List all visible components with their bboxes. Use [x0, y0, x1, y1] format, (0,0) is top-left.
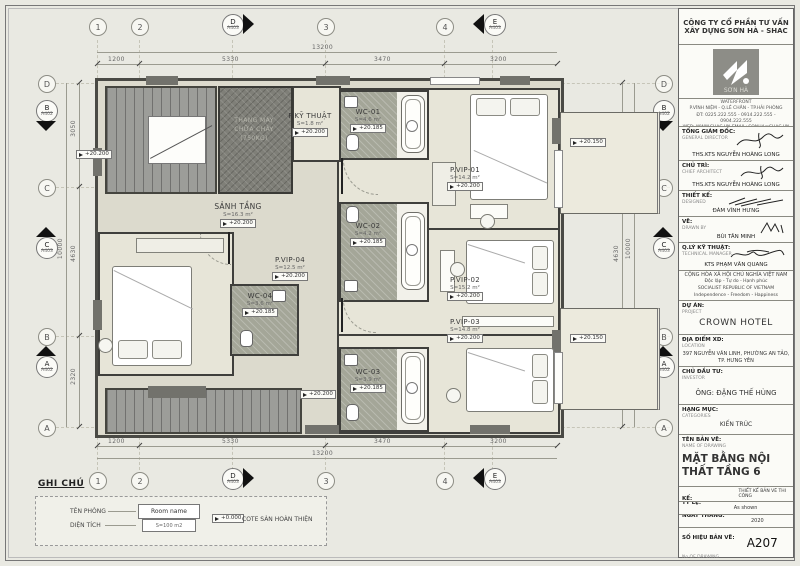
pillow: [532, 354, 548, 378]
grid-bubble-A-right: A: [655, 419, 673, 437]
room-label-vip-02: P.VIP-02 S=15.2 m² +20.200: [430, 276, 500, 301]
tub-drain: [406, 244, 418, 256]
dim-seg: 1200: [108, 438, 125, 445]
dim-overall-right: 10000: [625, 238, 632, 259]
chair: [480, 214, 495, 229]
pillow: [476, 98, 506, 116]
sonha-logo-icon: SƠN HÀ: [713, 49, 759, 95]
section-arrow-icon: [36, 121, 56, 131]
signature: [727, 247, 787, 262]
legend-room-name-label: TÊN PHÒNG: [70, 508, 106, 515]
section-marker-e: EA403: [484, 14, 506, 36]
location-value: 397 NGUYỄN VĂN LINH, PHƯỜNG AN TẢO, TP. …: [682, 351, 790, 365]
sink: [344, 280, 358, 292]
company-name: CÔNG TY CỔ PHẦN TƯ VẤN: [682, 19, 790, 27]
window: [430, 77, 480, 85]
level-tag: +20.200: [76, 150, 112, 159]
dim-seg: 5330: [222, 438, 239, 445]
room-label-sanh-tang: SẢNH TẦNG S=16.3 m² +20.200: [205, 202, 271, 228]
pillow: [152, 340, 182, 359]
room-label-wc-01: WC-01 S=4.6 m² +20.185: [340, 108, 396, 133]
level-tag: +20.200: [300, 390, 336, 399]
wardrobe: [136, 238, 224, 253]
project-row: DỰ ÁN: PROJECT CROWN HOTEL: [679, 301, 793, 335]
project-name: CROWN HOTEL: [682, 318, 790, 328]
toilet: [346, 134, 359, 151]
scale-row: TỶ LỆ:SCALE As shown: [679, 502, 793, 515]
grid-bubble-C: C: [38, 179, 56, 197]
signature: [737, 165, 787, 180]
grid-bubble-4b: 4: [436, 472, 454, 490]
chair: [450, 262, 465, 277]
room-label-wc-02: WC-02 S=4.2 m² +20.185: [340, 222, 396, 247]
category-row: HẠNG MỤC: CATEGORIES KIẾN TRÚC: [679, 405, 793, 435]
level-tag: +20.150: [570, 334, 606, 343]
dim-overall-bottom: 13200: [312, 450, 333, 457]
toilet: [346, 404, 359, 421]
dim-seg: 3050: [70, 120, 77, 137]
section-marker-b-left: BA402: [36, 100, 58, 122]
drawing-name-row: TÊN BẢN VẼ: NAME OF DRAWING MẶT BẰNG NỘI…: [679, 435, 793, 487]
grid-bubble-D: D: [38, 75, 56, 93]
grid-bubble-2: 2: [131, 18, 149, 36]
dim-seg: 3200: [490, 56, 507, 63]
investor-row: CHỦ ĐẦU TƯ: INVESTOR ÔNG: ĐẶNG THẾ HÙNG: [679, 367, 793, 405]
company-header: CÔNG TY CỔ PHẦN TƯ VẤN XÂY DỰNG SƠN HÀ -…: [679, 9, 793, 45]
section-arrow-icon: [36, 227, 56, 237]
drawing-name: MẶT BẰNG NỘI THẤT TẦNG 6: [682, 453, 790, 479]
tub-drain: [406, 382, 418, 394]
door-leaf: [341, 158, 343, 194]
pillow: [118, 340, 148, 359]
dim-seg: 2320: [70, 368, 77, 385]
dim-seg: 3200: [490, 438, 507, 445]
balcony-lower: [560, 308, 660, 410]
door-leaf: [341, 298, 343, 332]
dim-seg: 4630: [613, 245, 620, 262]
wall-pier: [305, 425, 339, 434]
stage-value: THIẾT KẾ BẢN VẼ THI CÔNG: [739, 489, 791, 499]
section-marker-e-bottom: EA403: [484, 468, 506, 490]
wall-pier: [93, 300, 102, 330]
door-leaf: [228, 232, 230, 264]
date-row: NGÀY THÁNG:DATE 2020: [679, 515, 793, 528]
toilet: [240, 330, 253, 347]
grid-bubble-4: 4: [436, 18, 454, 36]
legend-cote-label: COTE SÀN HOÀN THIỆN: [242, 516, 313, 523]
section-arrow-icon: [243, 468, 254, 488]
legend-title: GHI CHÚ: [38, 479, 84, 489]
nightstand: [98, 338, 113, 353]
section-marker-d: DA403: [222, 14, 244, 36]
room-label-wc-03: WC-03 S=3.9 m² +20.185: [340, 368, 396, 393]
stage-row: GIAI ĐOẠN THIẾT KẾ:DESIGNING THIẾT KẾ BẢ…: [679, 487, 793, 502]
wall-pier: [148, 386, 206, 398]
sink: [344, 96, 358, 108]
role-technical-manager: Q.LÝ KỸ THUẬT: TECHNICAL MANAGER KTS PHẠ…: [679, 243, 793, 271]
room-label-vip-03: P.VIP-03 S=14.8 m² +20.200: [430, 318, 500, 343]
section-arrow-icon: [653, 227, 673, 237]
signature: [757, 221, 787, 235]
scale-value: As shown: [734, 505, 758, 511]
wall-pier: [316, 76, 350, 85]
role-designed: THIẾT KẾ: DESIGNED ĐÀM VĨNH HƯNG: [679, 191, 793, 217]
wall-pier: [552, 118, 561, 144]
dim-seg: 3470: [374, 56, 391, 63]
grid-bubble-1: 1: [89, 18, 107, 36]
date-value: 2020: [751, 518, 764, 524]
pillow: [532, 272, 548, 296]
section-marker-a-left: AA402: [36, 356, 58, 378]
grid-bubble-D-right: D: [655, 75, 673, 93]
signature: [727, 195, 787, 207]
category-value: KIẾN TRÚC: [682, 421, 790, 428]
section-arrow-icon: [473, 14, 484, 34]
section-arrow-icon: [473, 468, 484, 488]
wall-pier: [470, 425, 510, 434]
room-label-vip-04: P.VIP-04 S=12.5 m² +20.200: [255, 256, 325, 281]
section-marker-c-right: CA403: [653, 237, 675, 259]
legend-area-label: DIỆN TÍCH: [70, 522, 101, 529]
tub-drain: [406, 120, 418, 132]
title-block: CÔNG TY CỔ PHẦN TƯ VẤN XÂY DỰNG SƠN HÀ -…: [678, 8, 794, 558]
balcony-upper: [560, 112, 660, 214]
dim-seg: 3470: [374, 438, 391, 445]
role-general-director: TỔNG GIÁM ĐỐC: GENERAL DIRECTOR THS.KTS …: [679, 127, 793, 161]
toilet: [346, 206, 359, 223]
legend-cote-marker: +0.000: [212, 514, 244, 523]
window: [554, 150, 563, 208]
dim-overall-left: 10000: [57, 238, 64, 259]
stair-landing: [148, 116, 206, 164]
dim-seg: 1200: [108, 56, 125, 63]
section-arrow-icon: [36, 346, 56, 356]
room-label-ky-thuat: P.KỸ THUẬT S=1.8 m² +20.200: [280, 112, 340, 137]
investor-value: ÔNG: ĐẶNG THẾ HÙNG: [682, 389, 790, 397]
company-logo: SƠN HÀ: [679, 45, 793, 99]
dim-seg: 5330: [222, 56, 239, 63]
grid-bubble-2b: 2: [131, 472, 149, 490]
location-row: ĐỊA ĐIỂM XD: LOCATION 397 NGUYỄN VĂN LIN…: [679, 335, 793, 367]
grid-bubble-3: 3: [317, 18, 335, 36]
drawing-number: A207: [747, 536, 778, 550]
room-label-vip-01: P.VIP-01 S=14.2 m² +20.200: [430, 166, 500, 191]
signature: [733, 131, 787, 149]
grid-bubble-3b: 3: [317, 472, 335, 490]
role-chief-architect: CHỦ TRÌ: CHIEF ARCHITECT THS.KTS NGUYỄN …: [679, 161, 793, 191]
role-drawn: VẼ: DRAWN BY BÙI TÂN MINH: [679, 217, 793, 243]
republic-motto: CỘNG HÒA XÃ HỘI CHỦ NGHĨA VIỆT NAM Độc l…: [679, 271, 793, 301]
wall-pier: [500, 76, 530, 85]
pillow: [510, 98, 540, 116]
svg-text:SƠN HÀ: SƠN HÀ: [724, 87, 749, 94]
chair: [446, 388, 461, 403]
pillow: [532, 380, 548, 404]
legend-room-name-box: Room name: [138, 504, 200, 519]
sink: [344, 354, 358, 366]
grid-bubble-B: B: [38, 328, 56, 346]
dim-seg: 4630: [70, 245, 77, 262]
wall-pier: [146, 76, 178, 85]
section-marker-c-left: CA403: [36, 237, 58, 259]
elevator-label: THANG MÁY CHỮA CHÁY (750KG): [222, 116, 286, 143]
section-marker-d-bottom: DA403: [222, 468, 244, 490]
legend-area-box: S=100 m2: [142, 519, 196, 532]
room-label-wc-04: WC-04 S=3.6 m² +20.185: [232, 292, 288, 317]
grid-bubble-A: A: [38, 419, 56, 437]
drawing-number-row: SỐ HIỆU BẢN VẼ:No OF DRAWING A207: [679, 528, 793, 558]
dim-overall-top: 13200: [312, 44, 333, 51]
company-address: ĐC: SỐ 55 ĐƯỜNG 22 KHU ĐÔ THỊ WATERFRONT…: [679, 99, 793, 127]
pillow: [532, 246, 548, 270]
section-arrow-icon: [243, 14, 254, 34]
window: [554, 352, 563, 404]
level-tag: +20.150: [570, 138, 606, 147]
grid-bubble-1b: 1: [89, 472, 107, 490]
